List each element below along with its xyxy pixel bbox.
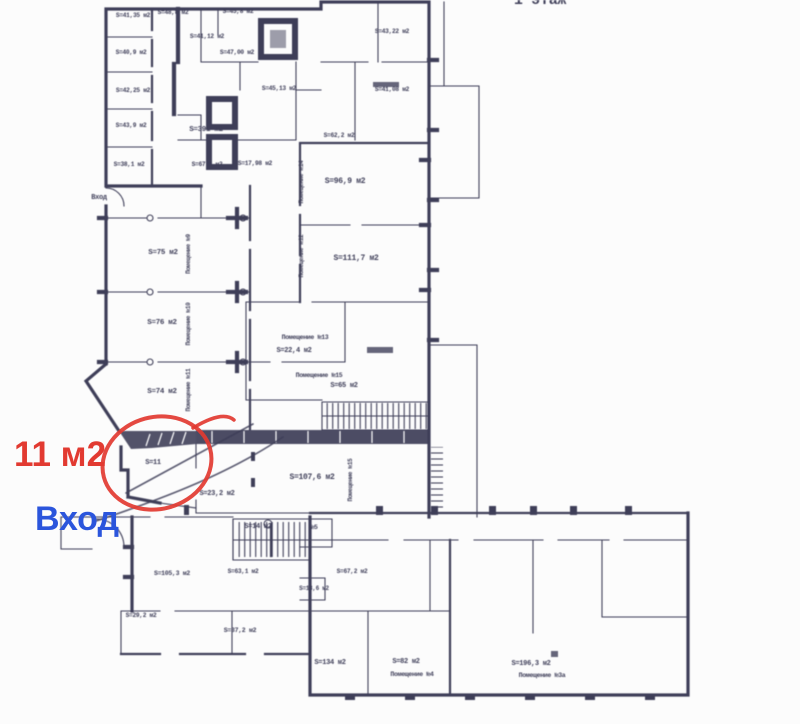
annotations-layer: 11 м2 Вход <box>0 0 800 724</box>
annotation-circle-tail <box>193 417 234 428</box>
floor-plan-screenshot: S=41,35 м2 S=40,9 м2 S=42,25 м2 S=43,9 м… <box>0 0 800 724</box>
annotation-entrance-text: Вход <box>35 500 119 538</box>
annotation-area-text: 11 м2 <box>14 435 106 474</box>
